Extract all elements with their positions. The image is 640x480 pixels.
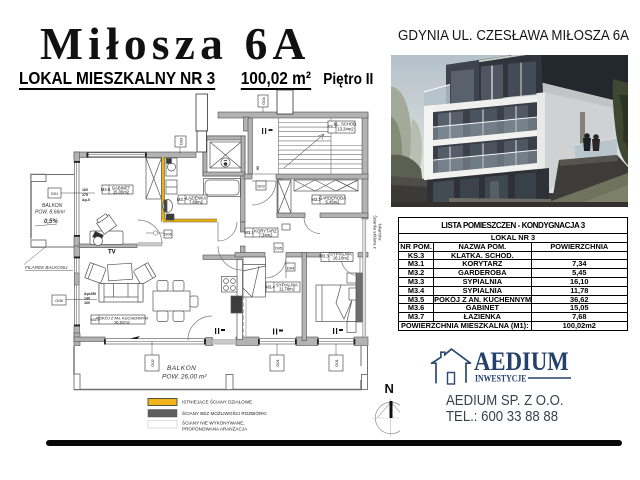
svg-text:TV: TV xyxy=(108,250,116,256)
svg-text:POW. 8,66m²: POW. 8,66m² xyxy=(35,210,65,216)
svg-text:G01: G01 xyxy=(51,191,59,196)
svg-text:M3.4: M3.4 xyxy=(265,285,275,290)
svg-text:Apr250: Apr250 xyxy=(84,292,96,296)
svg-text:O01: O01 xyxy=(275,358,280,366)
svg-text:279: 279 xyxy=(82,193,88,197)
svg-text:7,34m2: 7,34m2 xyxy=(259,233,274,238)
svg-text:36,62m2: 36,62m2 xyxy=(114,320,130,325)
svg-text:M3.3: M3.3 xyxy=(319,254,329,259)
svg-text:FILAREK BALKONU: FILAREK BALKONU xyxy=(25,265,68,270)
svg-text:15,05m2: 15,05m2 xyxy=(113,190,130,195)
svg-text:O01: O01 xyxy=(334,358,339,366)
svg-text:11,78m2: 11,78m2 xyxy=(279,287,296,292)
svg-text:ISTNIEJĄCE ŚCIANY DZIAŁOWE: ISTNIEJĄCE ŚCIANY DZIAŁOWE xyxy=(182,398,252,405)
svg-text:lukarnów: lukarnów xyxy=(378,224,383,242)
svg-text:N: N xyxy=(385,381,394,396)
svg-text:G08: G08 xyxy=(55,298,63,303)
svg-text:5,45m2: 5,45m2 xyxy=(326,200,341,205)
svg-text:Ap-0: Ap-0 xyxy=(82,198,90,202)
svg-text:16,10m2: 16,10m2 xyxy=(333,256,350,261)
svg-text:D06: D06 xyxy=(164,232,172,237)
svg-text:160: 160 xyxy=(82,188,88,192)
svg-text:BALKON: BALKON xyxy=(42,203,63,209)
svg-text:13,34m2: 13,34m2 xyxy=(337,127,354,132)
svg-text:O03: O03 xyxy=(179,137,184,145)
svg-text:D05: D05 xyxy=(275,246,283,251)
svg-text:140: 140 xyxy=(84,297,90,301)
svg-text:M3.6: M3.6 xyxy=(101,187,111,192)
svg-text:POW. 26,00 m²: POW. 26,00 m² xyxy=(162,374,207,381)
svg-text:M3.1: M3.1 xyxy=(244,230,254,235)
svg-text:90: 90 xyxy=(256,166,260,170)
svg-text:D03: D03 xyxy=(257,184,265,189)
svg-text:D04: D04 xyxy=(287,266,295,271)
svg-text:O04: O04 xyxy=(261,96,266,104)
svg-text:O02: O02 xyxy=(150,358,155,366)
svg-text:160: 160 xyxy=(84,301,90,305)
svg-text:ŚCIANY BEZ MOŻLIWOŚCI ROZBIÓRK: ŚCIANY BEZ MOŻLIWOŚCI ROZBIÓRKI xyxy=(182,409,267,416)
svg-text:INWESTYCJE: INWESTYCJE xyxy=(475,373,527,384)
svg-text:Ścianka szklana z: Ścianka szklana z xyxy=(373,215,378,249)
svg-text:7,68m2: 7,68m2 xyxy=(189,200,204,205)
svg-text:BALKON: BALKON xyxy=(167,365,196,372)
svg-text:ŚCIANY NIE WYKONYWANE,: ŚCIANY NIE WYKONYWANE, xyxy=(182,419,245,426)
svg-text:PROPONOWANA ARANŻACJA: PROPONOWANA ARANŻACJA xyxy=(182,426,248,432)
